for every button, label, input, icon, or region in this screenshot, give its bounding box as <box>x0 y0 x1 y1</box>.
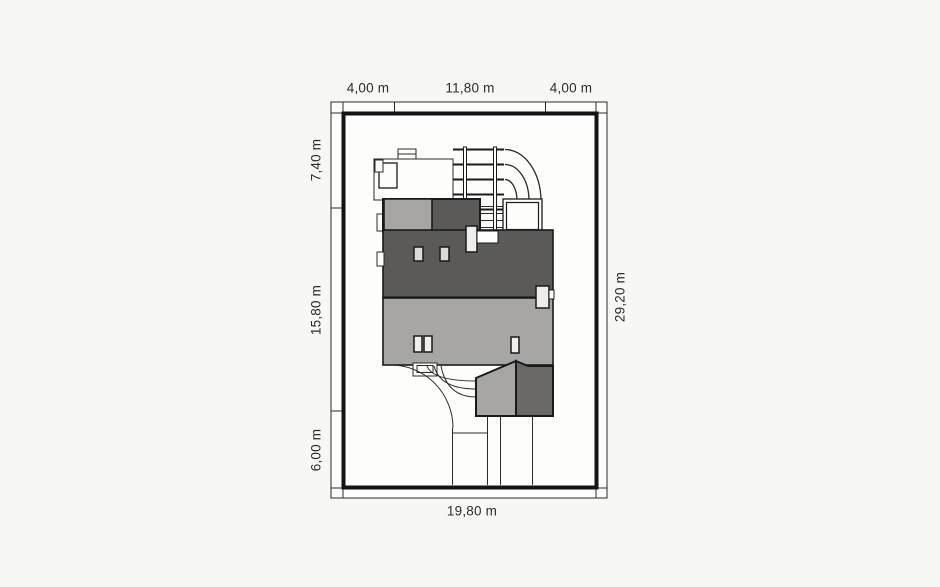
bottom-dormer <box>413 363 437 376</box>
left-step-1 <box>375 160 383 172</box>
roof-notch-white <box>477 231 498 243</box>
landing-square <box>503 199 542 233</box>
chimney-right-edge <box>536 286 549 308</box>
skylight-2 <box>424 336 432 352</box>
skylight-3 <box>511 337 519 353</box>
left-step-3 <box>377 252 384 266</box>
garden-steps <box>480 201 504 230</box>
roof-main-light-slab <box>383 298 553 365</box>
pergola-post-right <box>494 147 497 232</box>
dim-left-middle: 15,80 m <box>309 285 324 335</box>
chimney-small-2 <box>440 247 449 261</box>
chimney-large <box>466 226 477 252</box>
dim-top-center: 11,80 m <box>445 81 494 96</box>
chimney-small-1 <box>414 247 423 261</box>
garage-roof-dark-face <box>516 361 553 416</box>
dim-right: 29,20 m <box>613 272 628 322</box>
chimney-right-tick <box>549 290 554 299</box>
skylight-1 <box>414 336 422 352</box>
dim-top-left: 4,00 m <box>347 81 389 96</box>
dim-left-upper: 7,40 m <box>309 139 324 181</box>
dim-bottom: 19,80 m <box>447 504 497 519</box>
site-plan-page: 4,00 m 11,80 m 4,00 m 7,40 m 15,80 m 6,0… <box>0 0 940 587</box>
dim-top-right: 4,00 m <box>550 81 592 96</box>
dim-left-lower: 6,00 m <box>309 429 324 471</box>
